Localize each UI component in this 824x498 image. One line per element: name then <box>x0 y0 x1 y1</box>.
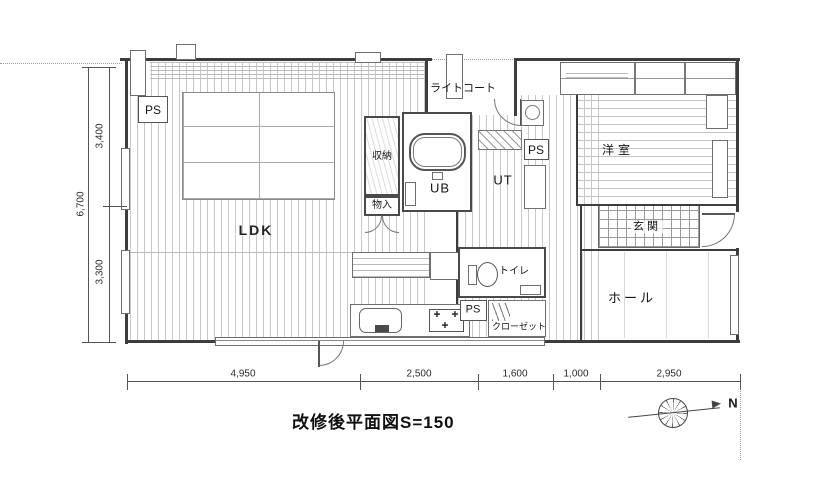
window-mullion <box>684 62 686 95</box>
ut-cabinet <box>524 165 546 209</box>
ps-low-label: PS <box>466 305 481 316</box>
wall-youshitsu-south <box>576 204 737 206</box>
floor-plan: PS 収納 物入 UB ライトコート UT PS 洋室 玄関 ホール LDK <box>0 0 824 498</box>
dim-bottom-2: 2,500 <box>406 369 431 380</box>
ldk-divider-line <box>130 252 352 253</box>
compass-icon <box>658 398 688 428</box>
reference-line <box>740 378 741 460</box>
wall-hall-west <box>580 205 582 340</box>
north-arrow-icon <box>712 400 722 409</box>
pillar <box>355 52 381 63</box>
youshitsu-label: 洋室 <box>602 144 634 156</box>
sink-soap-tray <box>375 325 389 332</box>
dimension-line-left-outer <box>88 67 89 342</box>
light-court-west-wall <box>425 58 428 116</box>
toilet-hand-basin <box>520 285 541 295</box>
bath-step <box>432 172 443 180</box>
reference-line <box>0 63 122 64</box>
wall-right-upper <box>736 58 739 212</box>
dim-bottom-3: 1,600 <box>502 369 527 380</box>
window-left-lower <box>121 250 130 314</box>
drawing-title: 改修後平面図S=150 <box>292 408 455 433</box>
entrance-door-arc <box>702 214 735 247</box>
dim-bottom-1: 4,950 <box>230 369 255 380</box>
eave-hatch <box>150 62 425 79</box>
hall-label: ホール <box>608 292 656 305</box>
pillar-shaft <box>130 50 146 96</box>
dim-left-total: 6,700 <box>76 191 87 216</box>
pillar <box>176 44 196 60</box>
washer-pan-hatch <box>478 130 522 150</box>
dim-left-top: 3,400 <box>95 123 106 148</box>
wall-top-left <box>120 58 432 61</box>
hall-floor <box>582 252 734 338</box>
toilet-bowl <box>477 262 498 287</box>
north-label: N <box>728 397 737 410</box>
stove-burner: ✚ <box>442 322 449 330</box>
kitchen-island-counter <box>352 252 430 278</box>
window-ldk-south <box>215 337 545 346</box>
light-court-open-edge <box>432 59 515 60</box>
dim-bottom-5: 2,950 <box>656 369 681 380</box>
washing-machine-drum <box>525 105 540 120</box>
window-hall-east <box>730 255 739 335</box>
genkan-label: 玄関 <box>631 221 663 234</box>
stove-burner: ✚ <box>452 311 459 319</box>
dim-bottom-4: 1,000 <box>563 369 588 380</box>
window-mullion <box>634 62 636 95</box>
ldk-door-arc <box>319 341 344 366</box>
stove-burner: ✚ <box>434 311 441 319</box>
closet-label: クローゼット <box>492 323 546 332</box>
bath-vanity <box>405 182 416 206</box>
ps-top-label: PS <box>145 104 161 116</box>
shuno-label: 収納 <box>372 152 392 162</box>
eave-hatch-right <box>566 70 628 78</box>
youshitsu-pillar <box>706 95 728 129</box>
toilet-label: トイレ <box>499 267 529 277</box>
closet-hanger-marks <box>492 303 510 321</box>
dimension-line-bottom <box>127 381 740 382</box>
ldk-label: LDK <box>239 223 274 237</box>
ub-label: UB <box>430 182 450 195</box>
ps-mid-label: PS <box>528 144 544 156</box>
dimension-line-left-inner <box>109 67 110 342</box>
ut-label: UT <box>493 174 512 187</box>
toilet-tank <box>468 265 477 285</box>
dim-left-bottom: 3,300 <box>95 259 106 284</box>
light-court-label: ライトコート <box>430 84 496 95</box>
wall-youshitsu-west <box>576 95 578 205</box>
youshitsu-window-east <box>712 140 728 198</box>
bedroom-grid-panel <box>182 92 335 200</box>
bathtub-inner <box>413 137 462 167</box>
monoire-label: 物入 <box>372 201 392 211</box>
window-left-upper <box>121 148 130 210</box>
youshitsu-window-band <box>560 62 736 95</box>
wall-genkan-south <box>580 249 737 251</box>
wall-top-right <box>515 58 740 61</box>
